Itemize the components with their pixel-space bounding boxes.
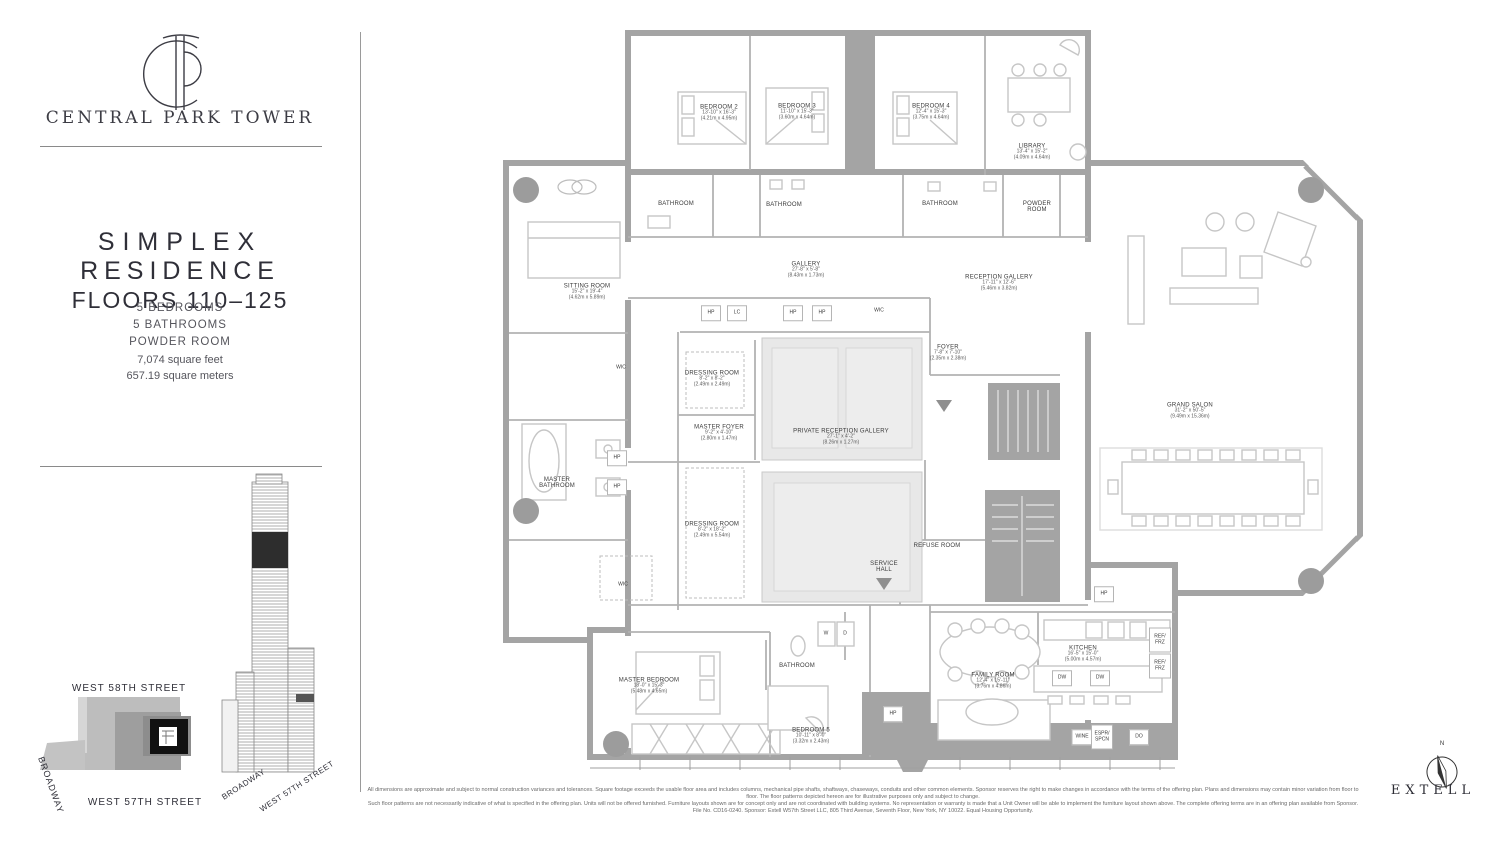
room-label-service-hall: SERVICE HALL <box>867 561 901 573</box>
fixture-hp-6: HP <box>883 706 903 722</box>
room-label-bathroom-3: BATHROOM <box>922 201 958 207</box>
room-label-family-room: FAMILY ROOM 12'-4" x 15'-11" (3.76m x 4.… <box>971 673 1014 690</box>
fixture-hp-3: HP <box>812 305 832 321</box>
room-label-reception-gallery: RECEPTION GALLERY 17'-11" x 12'-6" (5.46… <box>965 275 1033 292</box>
fixture-ref-frz-1: REF/ FRZ <box>1149 628 1171 653</box>
disclaimer-line-2: Such floor patterns are not necessarily … <box>363 801 1363 815</box>
room-label-master-bedroom: MASTER BEDROOM 18'-0" x 15'-3" (5.48m x … <box>619 678 679 695</box>
fixture-washer: W <box>824 631 829 637</box>
fixture-hp-1: HP <box>701 305 721 321</box>
room-label-master-bathroom: MASTER BATHROOM <box>535 477 579 489</box>
plan-labels-layer: BEDROOM 2 13'-10" x 16'-3" (4.21m x 4.95… <box>0 0 1500 844</box>
fixture-hp-5: HP <box>607 479 627 495</box>
fixture-dw-2: DW <box>1090 670 1110 686</box>
room-label-foyer: FOYER 7'-8" x 7'-10" (2.35m x 2.38m) <box>930 345 966 362</box>
fixture-hp-7: HP <box>1094 586 1114 602</box>
disclaimer: All dimensions are approximate and subje… <box>363 787 1363 815</box>
extell-logo: EXTELL <box>1388 783 1478 798</box>
fixture-ref-frz-2: REF/ FRZ <box>1149 654 1171 679</box>
fixture-dryer: D <box>843 631 847 637</box>
room-label-bedroom-5: BEDROOM 5 10'-11" x 8'-0" (3.32m x 2.43m… <box>792 728 830 745</box>
room-label-bathroom-2: BATHROOM <box>766 202 802 208</box>
room-label-sitting-room: SITTING ROOM 15'-2" x 19'-4" (4.62m x 5.… <box>564 284 610 301</box>
room-label-bathroom-1: BATHROOM <box>658 201 694 207</box>
fixture-do: DO <box>1129 729 1149 745</box>
room-label-gallery: GALLERY 27'-8" x 5'-8" (8.43m x 1.73m) <box>788 262 824 279</box>
fixture-wine: WINE <box>1071 729 1092 745</box>
room-label-bathroom-4: BATHROOM <box>779 663 815 669</box>
compass-north-label: N <box>1427 741 1457 747</box>
fixture-hp-2: HP <box>783 305 803 321</box>
room-label-master-foyer: MASTER FOYER 9'-2" x 4'-10" (2.80m x 1.4… <box>694 425 744 442</box>
room-label-dressing-room-1: DRESSING ROOM 8'-2" x 8'-2" (2.49m x 2.4… <box>685 371 739 388</box>
fixture-dw-1: DW <box>1052 670 1072 686</box>
room-label-kitchen: KITCHEN 16'-5" x 15'-0" (5.00m x 4.57m) <box>1065 646 1101 663</box>
fixture-lc: LC <box>727 305 747 321</box>
fixture-wic-3: WIC <box>618 582 628 588</box>
disclaimer-line-1: All dimensions are approximate and subje… <box>363 787 1363 801</box>
room-label-bedroom-2: BEDROOM 2 13'-10" x 16'-3" (4.21m x 4.95… <box>700 105 738 122</box>
room-label-powder-room: POWDER ROOM <box>1019 201 1055 213</box>
fixture-espr-spcn: ESPR/ SPCN <box>1091 725 1113 750</box>
room-label-dressing-room-2: DRESSING ROOM 8'-2" x 18'-2" (2.49m x 5.… <box>685 522 739 539</box>
room-label-refuse-room: REFUSE ROOM <box>914 543 961 549</box>
fixture-wic-1: WIC <box>874 308 884 314</box>
room-label-bedroom-4: BEDROOM 4 12'-4" x 15'-3" (3.75m x 4.64m… <box>912 104 950 121</box>
fixture-hp-4: HP <box>607 450 627 466</box>
room-label-private-reception-gallery: PRIVATE RECEPTION GALLERY 27'-1" x 4'-2"… <box>793 429 889 446</box>
floorplan-page: WEST 58TH STREET WEST 57TH STREET BROADW… <box>0 0 1500 844</box>
fixture-wic-2: WIC <box>616 365 626 371</box>
room-label-bedroom-3: BEDROOM 3 11'-10" x 15'-3" (3.60m x 4.64… <box>778 104 816 121</box>
room-label-library: LIBRARY 13'-4" x 15'-2" (4.09m x 4.64m) <box>1014 144 1050 161</box>
room-label-grand-salon: GRAND SALON 31'-2" x 50'-5" (9.49m x 15.… <box>1167 403 1213 420</box>
